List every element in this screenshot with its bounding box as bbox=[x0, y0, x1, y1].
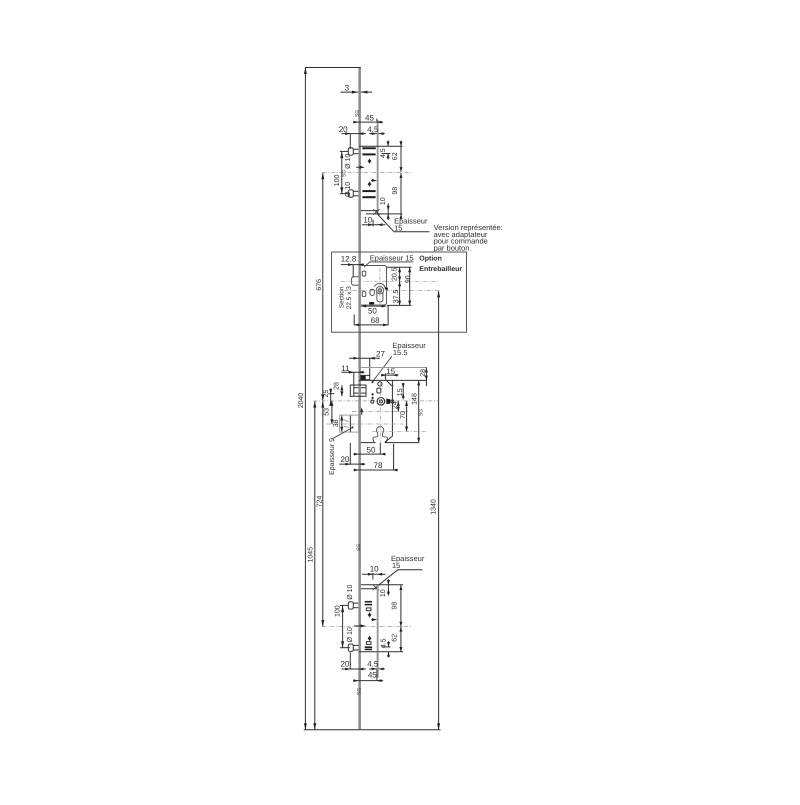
svg-text:25: 25 bbox=[323, 390, 330, 398]
svg-text:62: 62 bbox=[392, 152, 399, 160]
svg-text:27: 27 bbox=[376, 350, 385, 359]
svg-text:724: 724 bbox=[316, 496, 323, 508]
svg-text:70: 70 bbox=[400, 411, 407, 419]
svg-text:4.5: 4.5 bbox=[367, 125, 379, 134]
svg-text:Ø 10: Ø 10 bbox=[344, 182, 352, 197]
svg-text:Section: Section bbox=[338, 286, 345, 308]
svg-text:90: 90 bbox=[405, 275, 412, 283]
svg-text:Ø 10: Ø 10 bbox=[346, 627, 354, 642]
svg-text:10: 10 bbox=[380, 197, 387, 205]
svg-text:SG: SG bbox=[355, 110, 361, 117]
svg-text:15: 15 bbox=[386, 367, 395, 376]
svg-text:100: 100 bbox=[334, 605, 341, 617]
svg-text:15: 15 bbox=[392, 561, 400, 570]
svg-text:SG: SG bbox=[419, 409, 425, 416]
svg-text:28: 28 bbox=[333, 382, 340, 390]
svg-text:15.5: 15.5 bbox=[393, 348, 408, 357]
svg-text:50: 50 bbox=[367, 445, 376, 454]
svg-text:20: 20 bbox=[340, 659, 349, 668]
svg-text:Ø 10: Ø 10 bbox=[344, 154, 352, 169]
svg-text:par bouton.: par bouton. bbox=[434, 243, 472, 252]
svg-text:38: 38 bbox=[333, 419, 340, 427]
svg-text:676: 676 bbox=[316, 279, 323, 291]
svg-text:53: 53 bbox=[324, 408, 331, 416]
svg-text:24: 24 bbox=[392, 401, 399, 409]
svg-text:4.5: 4.5 bbox=[367, 660, 379, 669]
svg-text:10: 10 bbox=[370, 565, 379, 574]
svg-text:SG: SG bbox=[357, 688, 363, 695]
svg-text:98: 98 bbox=[391, 602, 398, 610]
svg-text:22.5 x 3: 22.5 x 3 bbox=[346, 286, 353, 310]
svg-text:28: 28 bbox=[420, 369, 427, 377]
svg-text:1340: 1340 bbox=[430, 499, 437, 515]
svg-text:2040: 2040 bbox=[298, 393, 305, 409]
svg-text:15: 15 bbox=[397, 388, 404, 396]
svg-text:68: 68 bbox=[371, 316, 380, 325]
svg-text:50: 50 bbox=[368, 307, 377, 316]
svg-text:10: 10 bbox=[363, 215, 372, 224]
svg-text:37.5: 37.5 bbox=[393, 289, 400, 303]
svg-text:3: 3 bbox=[345, 83, 350, 92]
svg-text:1045: 1045 bbox=[308, 547, 315, 563]
svg-text:20: 20 bbox=[340, 455, 349, 464]
svg-text:15: 15 bbox=[394, 223, 402, 232]
svg-text:4.5: 4.5 bbox=[380, 638, 387, 648]
svg-text:Option: Option bbox=[419, 255, 442, 263]
svg-text:20: 20 bbox=[339, 125, 348, 134]
svg-text:45: 45 bbox=[365, 114, 374, 123]
svg-text:45: 45 bbox=[368, 671, 377, 680]
svg-text:100: 100 bbox=[334, 174, 341, 186]
svg-text:11: 11 bbox=[341, 364, 350, 373]
svg-text:Entrebailleur: Entrebailleur bbox=[419, 265, 462, 273]
svg-text:SG: SG bbox=[356, 544, 362, 551]
svg-text:98: 98 bbox=[392, 187, 399, 195]
svg-text:Ø 10: Ø 10 bbox=[346, 585, 354, 600]
svg-text:148: 148 bbox=[411, 393, 418, 405]
svg-text:Epaisseur 9: Epaisseur 9 bbox=[328, 438, 336, 475]
svg-text:62: 62 bbox=[391, 634, 398, 642]
svg-text:78: 78 bbox=[374, 461, 383, 470]
svg-text:4.5: 4.5 bbox=[380, 148, 387, 158]
svg-text:Epaisseur 15: Epaisseur 15 bbox=[370, 253, 414, 262]
svg-text:10: 10 bbox=[380, 589, 387, 597]
svg-text:20.5: 20.5 bbox=[392, 267, 399, 281]
svg-text:SG: SG bbox=[342, 170, 348, 177]
svg-text:12.8: 12.8 bbox=[341, 255, 357, 264]
